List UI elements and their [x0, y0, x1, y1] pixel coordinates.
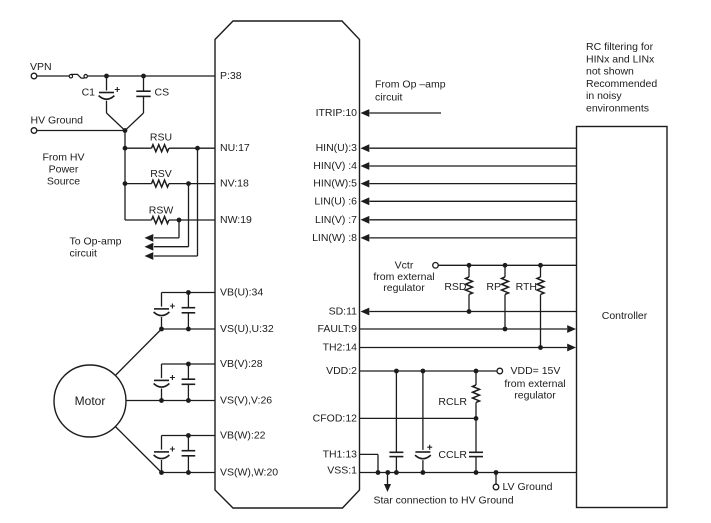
svg-text:RTH: RTH: [516, 281, 537, 293]
svg-text:VB(U):34: VB(U):34: [220, 287, 263, 299]
svg-text:NV:18: NV:18: [220, 178, 249, 190]
svg-text:RSU: RSU: [150, 132, 172, 144]
svg-text:HIN(U):3: HIN(U):3: [316, 142, 358, 154]
svg-text:Controller: Controller: [602, 310, 648, 322]
svg-text:LIN(V) :7: LIN(V) :7: [315, 214, 357, 226]
svg-text:From HV: From HV: [43, 152, 85, 164]
svg-text:RSV: RSV: [150, 168, 172, 180]
svg-text:HINx and LINx: HINx and LINx: [586, 53, 655, 65]
svg-text:Recommended: Recommended: [586, 78, 657, 90]
svg-text:VDD:2: VDD:2: [326, 365, 357, 377]
svg-text:NU:17: NU:17: [220, 142, 250, 154]
svg-text:environments: environments: [586, 103, 649, 115]
svg-text:from external: from external: [504, 378, 565, 390]
svg-text:VB(V):28: VB(V):28: [220, 358, 263, 370]
svg-text:regulator: regulator: [514, 390, 556, 402]
svg-text:LV Ground: LV Ground: [503, 481, 553, 493]
svg-text:TH2:14: TH2:14: [323, 342, 358, 354]
svg-text:VDD= 15V: VDD= 15V: [511, 365, 561, 377]
svg-text:VS(V),V:26: VS(V),V:26: [220, 395, 272, 407]
svg-text:Star connection to HV Ground: Star connection to HV Ground: [374, 495, 514, 507]
svg-text:CCLR: CCLR: [438, 449, 467, 461]
svg-text:CFOD:12: CFOD:12: [313, 412, 358, 424]
svg-text:NW:19: NW:19: [220, 214, 252, 226]
svg-text:Motor: Motor: [75, 394, 106, 408]
svg-text:ITRIP:10: ITRIP:10: [316, 107, 358, 119]
svg-text:HIN(W):5: HIN(W):5: [313, 178, 357, 190]
svg-text:RC filtering for: RC filtering for: [586, 41, 654, 53]
svg-text:LIN(U) :6: LIN(U) :6: [314, 195, 357, 207]
svg-text:RP: RP: [486, 281, 501, 293]
svg-text:C1: C1: [82, 87, 96, 99]
svg-text:circuit: circuit: [70, 247, 98, 259]
svg-text:circuit: circuit: [375, 92, 403, 104]
svg-text:RCLR: RCLR: [438, 396, 467, 408]
svg-text:From Op –amp: From Op –amp: [375, 79, 446, 91]
svg-text:Power: Power: [49, 164, 79, 176]
svg-text:CS: CS: [155, 87, 170, 99]
svg-text:VSS:1: VSS:1: [327, 465, 357, 477]
svg-text:FAULT:9: FAULT:9: [318, 323, 358, 335]
svg-text:To Op-amp: To Op-amp: [70, 235, 122, 247]
svg-text:HIN(V) :4: HIN(V) :4: [313, 160, 357, 172]
svg-text:TH1:13: TH1:13: [323, 448, 358, 460]
svg-text:VPN: VPN: [30, 61, 52, 73]
svg-text:Vctr: Vctr: [395, 259, 414, 271]
svg-text:VS(W),W:20: VS(W),W:20: [220, 467, 278, 479]
svg-text:RSW: RSW: [149, 205, 174, 217]
svg-text:LIN(W) :8: LIN(W) :8: [312, 232, 357, 244]
svg-text:from external: from external: [373, 271, 434, 283]
svg-text:in noisy: in noisy: [586, 90, 622, 102]
svg-text:SD:11: SD:11: [329, 306, 358, 318]
svg-text:regulator: regulator: [383, 282, 425, 294]
svg-text:HV Ground: HV Ground: [31, 115, 84, 127]
svg-text:P:38: P:38: [220, 70, 242, 82]
svg-text:Source: Source: [47, 176, 80, 188]
svg-text:VS(U),U:32: VS(U),U:32: [220, 323, 274, 335]
svg-text:VB(W):22: VB(W):22: [220, 430, 266, 442]
svg-text:RSD: RSD: [444, 281, 467, 293]
svg-text:not shown: not shown: [586, 66, 634, 78]
